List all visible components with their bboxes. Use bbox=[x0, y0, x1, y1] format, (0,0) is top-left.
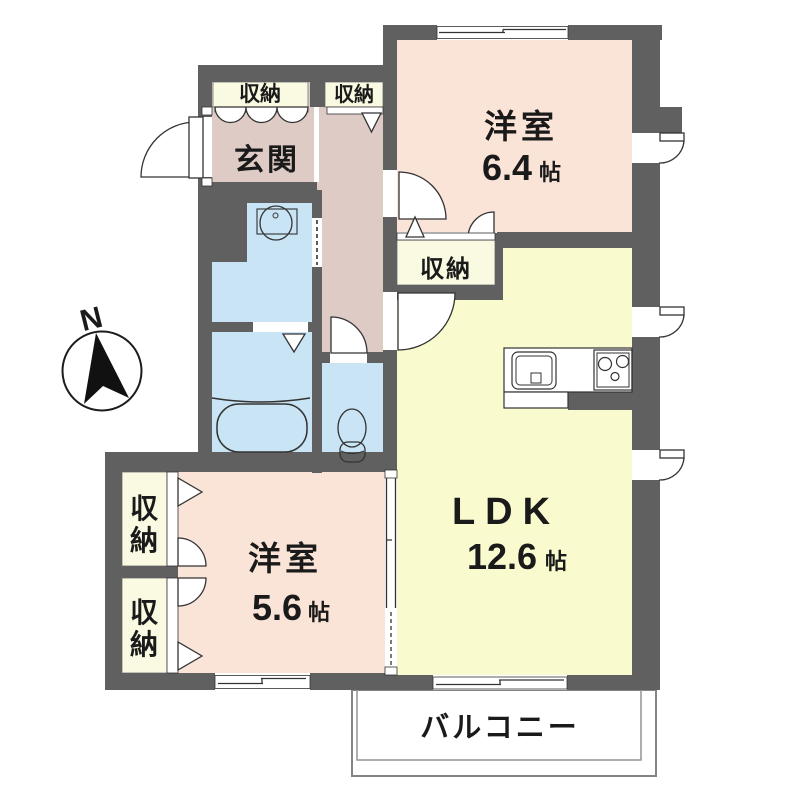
closet-left2-label-char1: 収 bbox=[130, 597, 159, 628]
balcony-sliding-door-ldk bbox=[433, 677, 567, 689]
bathroom-floor bbox=[212, 332, 312, 455]
genkan-step-line bbox=[314, 107, 319, 182]
window-top-sliding bbox=[437, 27, 568, 39]
bedroom-top-size: 6.4 bbox=[482, 147, 532, 188]
bedroom-top-label: 洋室 bbox=[484, 108, 558, 145]
window-casement-3 bbox=[659, 450, 684, 480]
floor-plan: N 玄関 洋室 6.4 帖 LDK 12.6 帖 洋室 5.6 帖 バルコニー … bbox=[0, 0, 800, 800]
closet-hall-label: 収納 bbox=[334, 82, 374, 106]
ldk-floor-left bbox=[397, 300, 497, 675]
bedroom-left-size-unit: 帖 bbox=[308, 600, 330, 625]
window-sliding-bedroom-left bbox=[215, 676, 310, 689]
ldk-size-unit: 帖 bbox=[545, 549, 567, 574]
washroom-floor-lower bbox=[212, 262, 312, 322]
bedroom-top-size-unit: 帖 bbox=[539, 160, 561, 185]
ldk-size: 12.6 bbox=[467, 536, 537, 577]
balcony-label: バルコニー bbox=[420, 712, 579, 744]
toilet-floor bbox=[322, 363, 383, 460]
bedroom-left-size: 5.6 bbox=[252, 587, 302, 628]
bedroom-left-label: 洋室 bbox=[248, 540, 322, 577]
closet-left2-label-char2: 納 bbox=[130, 628, 158, 660]
closet-genkan-label: 収納 bbox=[239, 82, 281, 106]
closet-genkan-bifold bbox=[215, 107, 308, 122]
compass: N bbox=[63, 301, 142, 411]
genkan-label: 玄関 bbox=[234, 143, 300, 177]
closet-mid-label: 収納 bbox=[420, 255, 472, 283]
entrance-door-swing bbox=[141, 122, 196, 177]
ldk-label: LDK bbox=[452, 491, 560, 533]
ldk-floor-right bbox=[497, 248, 632, 675]
closet-left1-label-char2: 納 bbox=[130, 524, 158, 556]
entrance-door-leaf bbox=[189, 117, 203, 178]
closet-left1-label-char1: 収 bbox=[130, 493, 159, 524]
north-label: N bbox=[77, 301, 106, 338]
window-casement-2 bbox=[659, 307, 684, 337]
window-casement-1 bbox=[659, 133, 684, 163]
